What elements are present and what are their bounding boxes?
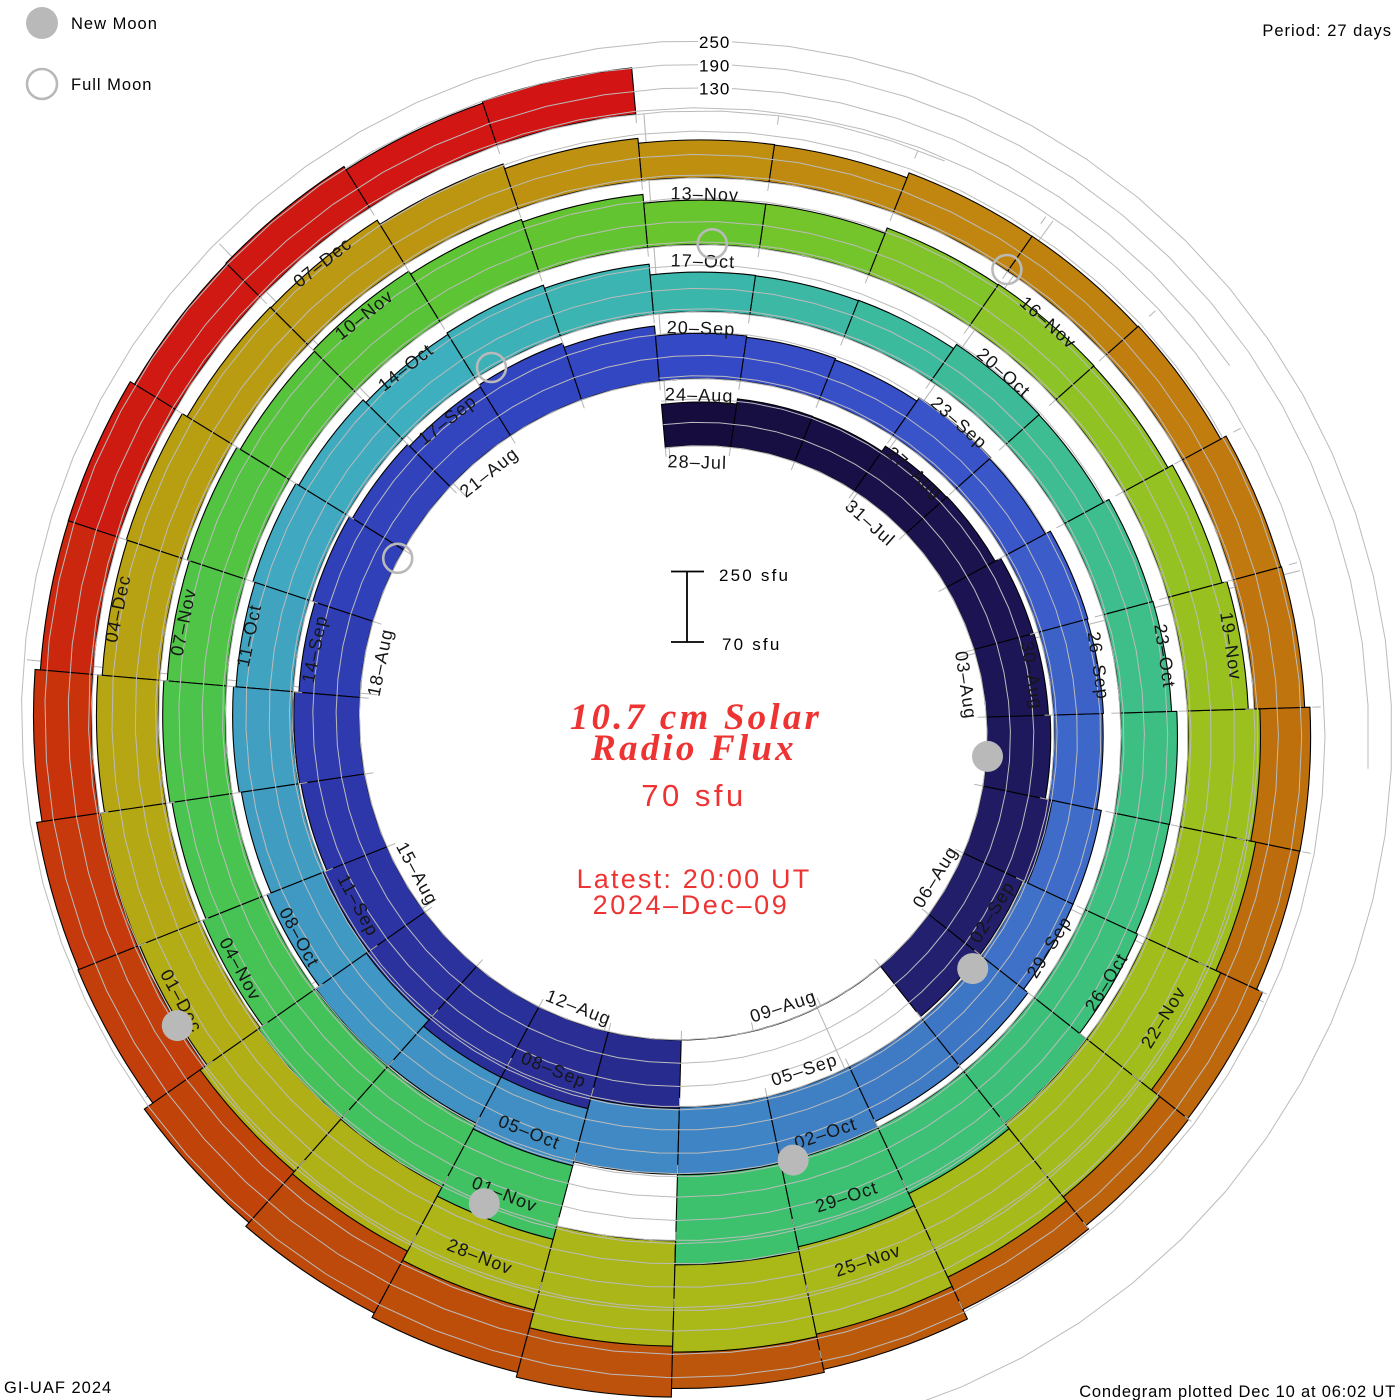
svg-text:2024–Dec–09: 2024–Dec–09 — [593, 890, 790, 920]
svg-text:190: 190 — [699, 56, 730, 75]
svg-text:New Moon: New Moon — [71, 15, 158, 33]
svg-text:130: 130 — [699, 80, 730, 99]
svg-text:Radio Flux: Radio Flux — [590, 728, 797, 769]
svg-text:28–Jul: 28–Jul — [667, 451, 727, 473]
svg-text:24–Aug: 24–Aug — [665, 384, 734, 406]
svg-text:250: 250 — [699, 33, 730, 52]
svg-text:70 sfu: 70 sfu — [722, 635, 782, 654]
svg-text:Full Moon: Full Moon — [71, 76, 152, 94]
svg-text:250 sfu: 250 sfu — [719, 566, 790, 585]
svg-text:20–Sep: 20–Sep — [666, 317, 735, 339]
svg-text:GI-UAF 2024: GI-UAF 2024 — [4, 1379, 112, 1397]
svg-text:13–Nov: 13–Nov — [670, 183, 739, 205]
svg-text:Period: 27 days: Period: 27 days — [1262, 22, 1392, 40]
svg-text:70 sfu: 70 sfu — [641, 778, 746, 813]
svg-text:Condegram plotted Dec 10 at 06: Condegram plotted Dec 10 at 06:02 UT — [1079, 1383, 1396, 1400]
